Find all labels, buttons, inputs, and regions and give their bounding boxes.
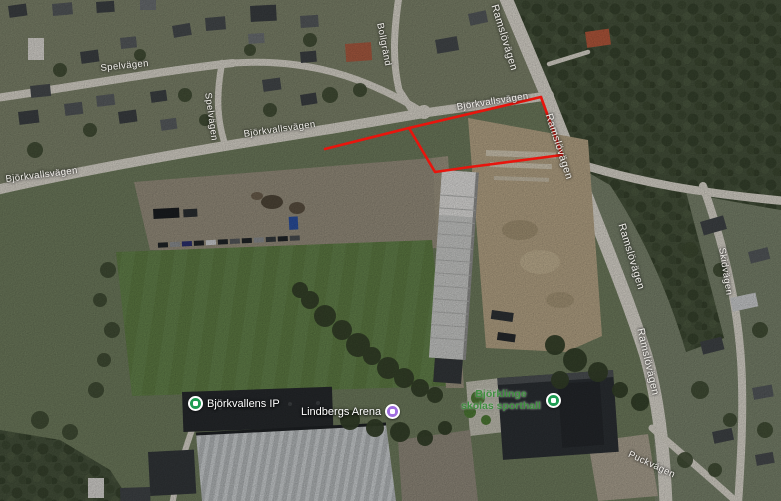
grain-overlay <box>0 0 781 501</box>
satellite-map[interactable]: Spelvägen Spelvägen Bollgränd Björkvalls… <box>0 0 781 501</box>
poi-label[interactable]: Björklinge skolas sporthall <box>460 388 542 412</box>
sports-pin-icon[interactable] <box>188 396 203 411</box>
poi-bjorkvallens-ip: Björkvallens IP <box>188 396 280 411</box>
poi-label[interactable]: Lindbergs Arena <box>301 406 381 418</box>
sports-pin-icon[interactable] <box>546 393 561 408</box>
arena-pin-icon[interactable] <box>385 404 400 419</box>
poi-bjorklinge-skolas-sporthall: Björklinge skolas sporthall <box>460 388 561 412</box>
poi-lindbergs-arena: Lindbergs Arena <box>301 404 400 419</box>
satellite-imagery <box>0 0 781 501</box>
poi-label[interactable]: Björkvallens IP <box>207 398 280 410</box>
